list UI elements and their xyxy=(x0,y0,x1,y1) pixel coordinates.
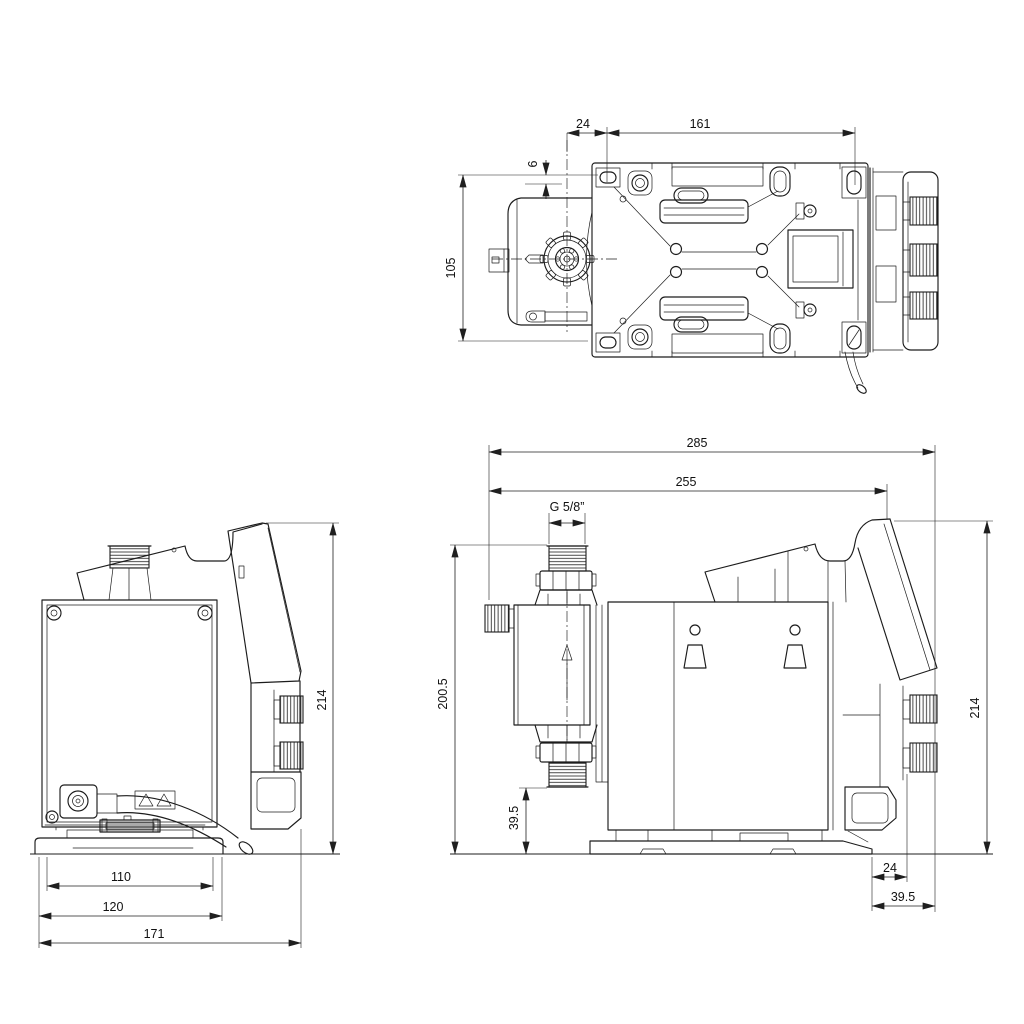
mounting-slot-top-right xyxy=(847,171,861,194)
top-view-dimensions: 24 161 6 105 xyxy=(444,117,855,341)
connector-knob xyxy=(280,696,303,723)
connector-knob xyxy=(910,292,937,319)
threaded-connector-top xyxy=(549,546,586,571)
pump-housing xyxy=(608,602,828,830)
dosing-head xyxy=(514,605,590,725)
connector-knob xyxy=(910,743,937,772)
dim-label-side-214: 214 xyxy=(315,690,329,711)
base-plate xyxy=(35,838,223,854)
front-view-pump xyxy=(450,519,993,854)
power-cable-end xyxy=(855,383,868,395)
top-cover-profile xyxy=(77,524,262,600)
dim-label-side-171: 171 xyxy=(144,927,165,941)
dim-label-front-255: 255 xyxy=(676,475,697,489)
connector-knob xyxy=(910,695,937,723)
technical-drawing-canvas: 24 161 6 105 xyxy=(0,0,1024,1024)
dim-label-front-214: 214 xyxy=(968,698,982,719)
threaded-connector-bottom xyxy=(549,763,586,787)
connector-knob xyxy=(910,244,937,276)
electronics-box xyxy=(42,600,217,827)
dim-label-top-105: 105 xyxy=(444,258,458,279)
connector-knob xyxy=(910,197,937,225)
vent-knob xyxy=(485,605,509,632)
wall-mount-keyholes xyxy=(684,645,806,668)
dim-label-thread-size: G 5/8” xyxy=(550,500,585,514)
threaded-connector xyxy=(110,546,149,568)
dim-label-side-110: 110 xyxy=(111,870,131,884)
dim-label-front-200-5: 200.5 xyxy=(436,678,450,709)
base-plate xyxy=(590,841,872,854)
dim-label-top-24: 24 xyxy=(576,117,590,131)
side-view-dimensions: 214 110 120 171 xyxy=(39,523,339,948)
control-panel xyxy=(858,519,937,680)
dim-label-front-285: 285 xyxy=(687,436,708,450)
dim-label-front-24: 24 xyxy=(883,861,897,875)
dim-label-top-6: 6 xyxy=(526,160,540,167)
dim-label-top-161: 161 xyxy=(690,117,711,131)
top-view-mounting-plate xyxy=(592,163,868,357)
panel-foot-bracket xyxy=(251,772,301,829)
top-view-motor xyxy=(489,140,618,332)
dim-label-front-39-5-bottom: 39.5 xyxy=(891,890,915,904)
mounting-slot-top-left xyxy=(600,172,616,183)
connector-knob xyxy=(280,742,303,769)
control-panel-profile xyxy=(228,523,301,683)
cable-gland xyxy=(60,785,97,818)
pump-dimensional-drawing: 24 161 6 105 xyxy=(0,0,1024,1024)
warning-triangle-icon xyxy=(139,794,171,806)
side-view-pump xyxy=(30,523,340,857)
dim-label-side-120: 120 xyxy=(103,900,124,914)
front-view: 285 255 G 5/8” 200.5 39.5 214 24 39.5 xyxy=(436,436,993,912)
dim-label-front-39-5-side: 39.5 xyxy=(507,806,521,830)
top-view-control-head xyxy=(845,168,938,395)
top-view: 24 161 6 105 xyxy=(444,117,938,395)
side-view: 214 110 120 171 xyxy=(30,523,340,948)
